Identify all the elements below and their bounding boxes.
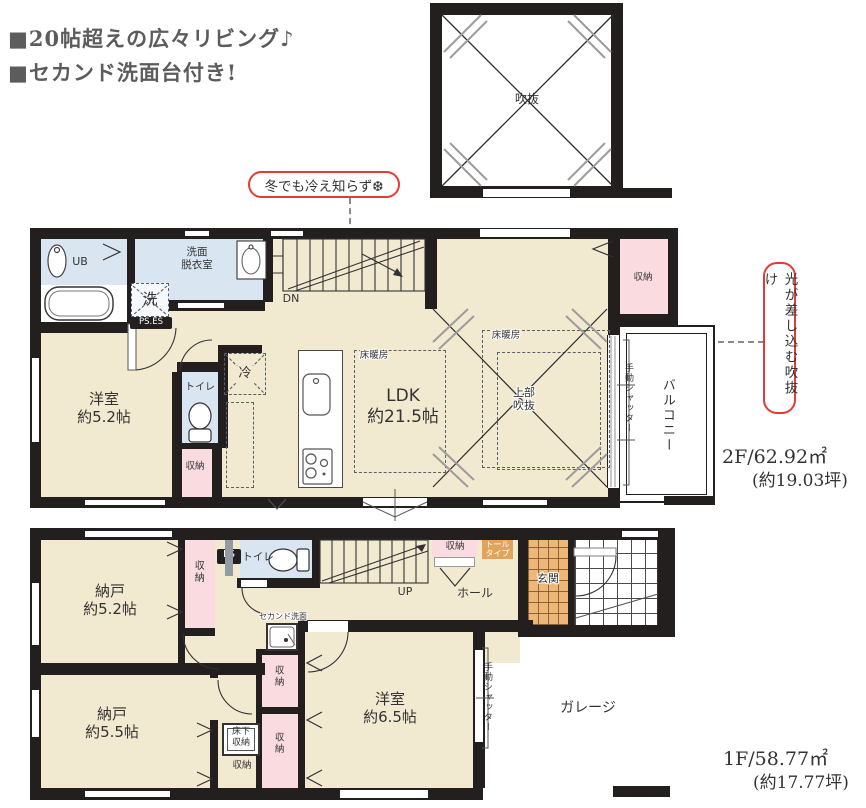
f2-window-washroom-bottom (178, 302, 224, 309)
f1-wall-storage52-closet (178, 540, 185, 663)
f2-toilet-label: トイレ (183, 382, 217, 394)
f1-wall-genkan-bottom (518, 625, 675, 637)
f1-bedroom65-label: 洋室 約6.5帖 (345, 690, 435, 727)
header-note-2: ■セカンド洗面台付き! (8, 60, 237, 86)
f2-upper-void-label: 上部 吹抜 (502, 386, 546, 413)
f1-closet-under-label: 収納 (226, 760, 258, 772)
f2-wall-below-bath (41, 322, 131, 333)
f1-second-sink-label: セカンド洗面 (238, 612, 328, 622)
f2-closet-label: 収納 (179, 461, 211, 473)
f2-shutter-label: 手動シャッター (622, 363, 633, 433)
f2-closet-small (177, 449, 212, 497)
floorplan-page: ■20帖超えの広々リビング♪ ■セカンド洗面台付き! 吹抜 冬でも冷え知らず❆ … (0, 0, 866, 808)
f2-kitchen-island (298, 350, 343, 488)
header-note-1: ■20帖超えの広々リビング♪ (8, 26, 294, 52)
f2-fridge-label: 冷 (231, 366, 259, 382)
f1-wall-genkan-right (568, 540, 574, 625)
f2-washroom-label: 洗面 脱衣室 (167, 246, 227, 272)
winter-callout: 冬でも冷え知らず❆ (248, 171, 400, 198)
f2-window-top-1 (185, 230, 209, 237)
f2-ldk-label: LDK 約21.5帖 (358, 386, 448, 427)
f1-closet-left (185, 540, 215, 628)
f2-window-top-3 (480, 228, 570, 238)
f1-window-bottom-2 (340, 789, 428, 799)
f2-wall-fridge-top (218, 345, 262, 353)
f2-washer-label: 洗 (135, 290, 165, 308)
f1-hall-label: ホール (450, 586, 500, 601)
f1-window-left-2 (31, 690, 40, 737)
f1-window-left-1 (31, 583, 40, 645)
f2-ub-label: UB (60, 255, 100, 268)
f1-wall-stair-left (312, 538, 320, 583)
f1-tall-cabinet-label: トール タイプ (482, 540, 513, 558)
f1-opening-bedroom-door (308, 621, 348, 632)
f2-heating-right-label: 床暖房 (484, 330, 528, 342)
f1-area-label: 1F/58.77㎡ (723, 748, 863, 771)
f1-garage-bottom-bar (613, 786, 670, 797)
roof-void-wall-extension (570, 188, 672, 198)
f1-porch-tiles (574, 538, 658, 630)
f1-window-top (85, 530, 172, 538)
f2-closet-right-wall (668, 228, 678, 325)
f1-garage-label: ガレージ (548, 700, 628, 717)
f1-window-porch-top (622, 530, 658, 538)
f2-wall-toilet-top (177, 362, 218, 372)
f1-storage52-label: 納戸 約5.2帖 (66, 582, 154, 619)
f2-wall-closet-small-right (212, 449, 222, 497)
f1-wall-bedroom-left (298, 632, 305, 788)
f2-balcony-bottom-bar (664, 496, 715, 505)
f1-toilet-label: トイレ (240, 551, 276, 564)
f1-underfloor-label: 床下 収納 (224, 727, 258, 749)
f2-window-bottom-1 (85, 499, 165, 506)
f2-heating-left-label: 床暖房 (352, 350, 396, 362)
f2-pses-chip: PS.ES (130, 317, 172, 329)
f1-wall-porch-right (658, 528, 675, 630)
roof-void-label: 吹抜 (497, 92, 557, 107)
f2-area-label: 2F/62.92㎡ (722, 446, 862, 469)
f2-balcony-label: バルコニー (659, 378, 675, 453)
f2-wall-washroom-right (263, 239, 273, 302)
f2-closet-bottom-wall (617, 314, 678, 325)
f1-closet-hall-label: 収納 (438, 541, 472, 553)
f1-opening-storage55-door (210, 678, 218, 720)
f2-window-bottom-2 (363, 497, 427, 507)
f1-closet-left-label: 収納 (191, 560, 203, 584)
f2-bath-area (41, 285, 135, 322)
light-callout: 光が差し込む吹抜け (763, 262, 796, 414)
f1-tsubo-label: (約17.77坪) (753, 773, 866, 794)
f1-wall-closet-bottom (178, 628, 215, 636)
f1-second-sink-box (266, 623, 298, 651)
f1-closet-hall-shelf (434, 557, 475, 567)
f1-ps-strip (225, 540, 233, 576)
f1-closet-b-label: 収納 (272, 732, 284, 755)
f2-window-top-2 (271, 230, 303, 237)
f2-cupboard-box (226, 402, 254, 488)
roof-void-window (483, 188, 570, 198)
f1-wall-closetcol-split (262, 707, 298, 714)
f1-closet-a-label: 収納 (272, 665, 284, 688)
f2-dn-label: DN (276, 292, 306, 305)
f1-shutter-label: 手動シャッター (481, 662, 492, 732)
f2-window-bottom-3 (483, 499, 547, 506)
f2-wall-stair-right (425, 239, 437, 309)
f1-up-label: UP (390, 585, 420, 598)
light-callout-text: 光が差し込む吹抜け (760, 272, 800, 404)
winter-callout-text: 冬でも冷え知らず❆ (264, 175, 383, 195)
f1-storage55-label: 納戸 約5.5帖 (68, 705, 156, 742)
f2-closet-right-label: 収納 (627, 272, 659, 284)
f1-window-bottom-1 (85, 790, 170, 798)
f2-wall-bedroom-right (172, 372, 182, 497)
f1-wall-mid (30, 663, 265, 675)
f2-window-left (31, 358, 40, 442)
f2-bedroom-label: 洋室 約5.2帖 (60, 390, 148, 427)
f1-entrance-label: 玄関 (532, 572, 564, 585)
f1-opening-toilet-door (241, 580, 267, 587)
f2-tsubo-label: (約19.03坪) (752, 471, 866, 492)
f2-wall-top (30, 228, 678, 239)
